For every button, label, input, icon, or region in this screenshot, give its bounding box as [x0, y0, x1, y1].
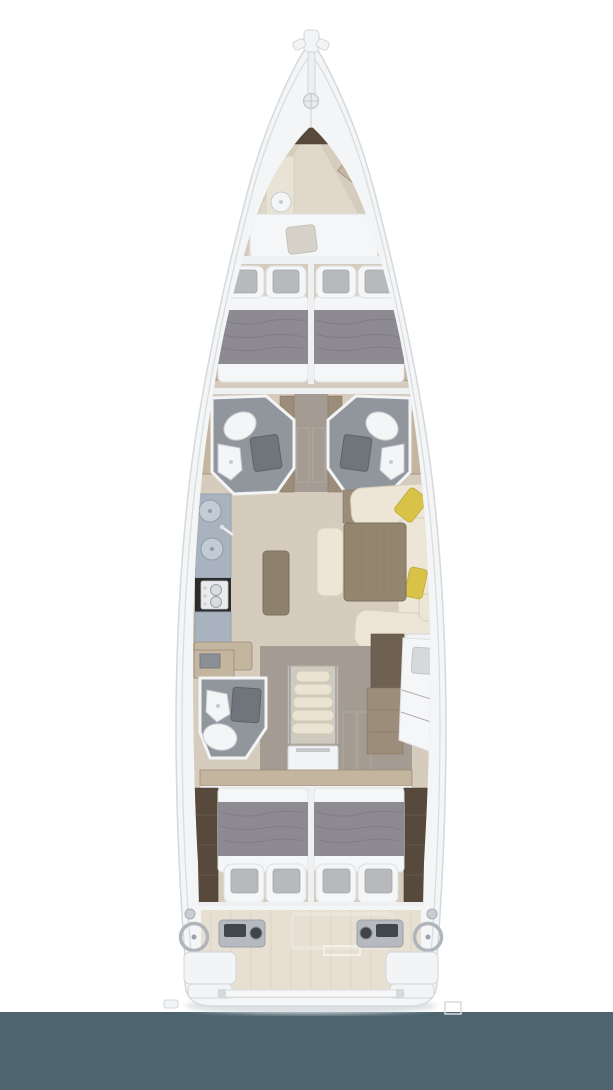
- compass: [250, 927, 262, 939]
- headboard-cushion: [323, 270, 349, 293]
- sink-drain: [216, 704, 220, 708]
- traveler-end: [218, 989, 226, 998]
- foot-cushion: [323, 869, 350, 893]
- salon-island: [263, 551, 289, 615]
- dining-table: [344, 523, 406, 601]
- burner: [211, 597, 222, 608]
- burner: [211, 585, 222, 596]
- sink-drain: [229, 460, 233, 464]
- drawer-unit: [367, 688, 403, 754]
- instrument-screen: [376, 924, 398, 937]
- forepeak-sink-drain: [279, 200, 283, 204]
- foot-cushion: [273, 869, 300, 893]
- shower-mat: [231, 687, 261, 723]
- bottom-color-band: [0, 1012, 613, 1090]
- engine-hatch-handle: [296, 748, 330, 752]
- aft-cabin-divider: [308, 786, 314, 906]
- companionway: Companionway steps with engine hatch: [288, 666, 338, 782]
- stern-fitting-port: [164, 1000, 178, 1008]
- headboard-cushion: [273, 270, 299, 293]
- tall-cabinet: [371, 634, 404, 688]
- foot-cushion: [365, 869, 392, 893]
- bowsprit-tip: [304, 30, 319, 52]
- aft-cabin-port: Aft double cabin, port, gray blanket and…: [188, 788, 308, 906]
- wheel-hub: [192, 935, 197, 940]
- faucet-base: [220, 525, 224, 529]
- shower-mat: [340, 434, 372, 472]
- forepeak-bulkhead: [216, 256, 406, 264]
- vanity-basin: [200, 654, 220, 668]
- anchor-track: [308, 52, 315, 98]
- aft-cabin-bulkhead-cabinets: [200, 770, 412, 786]
- step: [294, 684, 332, 695]
- forward-cabin-divider: [308, 264, 314, 384]
- helm-seat: [386, 952, 438, 984]
- salon-bench: [317, 528, 343, 596]
- yacht-floorplan-page: overhead deck and interior plan of a sai…: [0, 0, 613, 1090]
- step: [292, 723, 334, 734]
- yacht-floorplan: overhead deck and interior plan of a sai…: [0, 0, 613, 1090]
- corridor-forward: Central corridor between forward heads: [294, 394, 328, 492]
- helm-seat: [184, 952, 236, 984]
- winch: [185, 909, 195, 919]
- aft-cabin-starboard: Aft double cabin, starboard, gray blanke…: [314, 788, 434, 906]
- winch: [427, 909, 437, 919]
- traveler-bar: [218, 990, 404, 997]
- step: [292, 710, 334, 721]
- instrument-screen: [224, 924, 246, 937]
- step: [293, 697, 333, 708]
- traveler-end: [396, 989, 404, 998]
- step: [296, 671, 330, 682]
- wheel-hub: [426, 935, 431, 940]
- compass: [360, 927, 372, 939]
- forepeak-pillow: [286, 224, 318, 254]
- sink-drain: [389, 460, 393, 464]
- shower-mat: [250, 434, 282, 472]
- heads-bulkhead: [212, 388, 412, 394]
- foot-cushion: [231, 869, 258, 893]
